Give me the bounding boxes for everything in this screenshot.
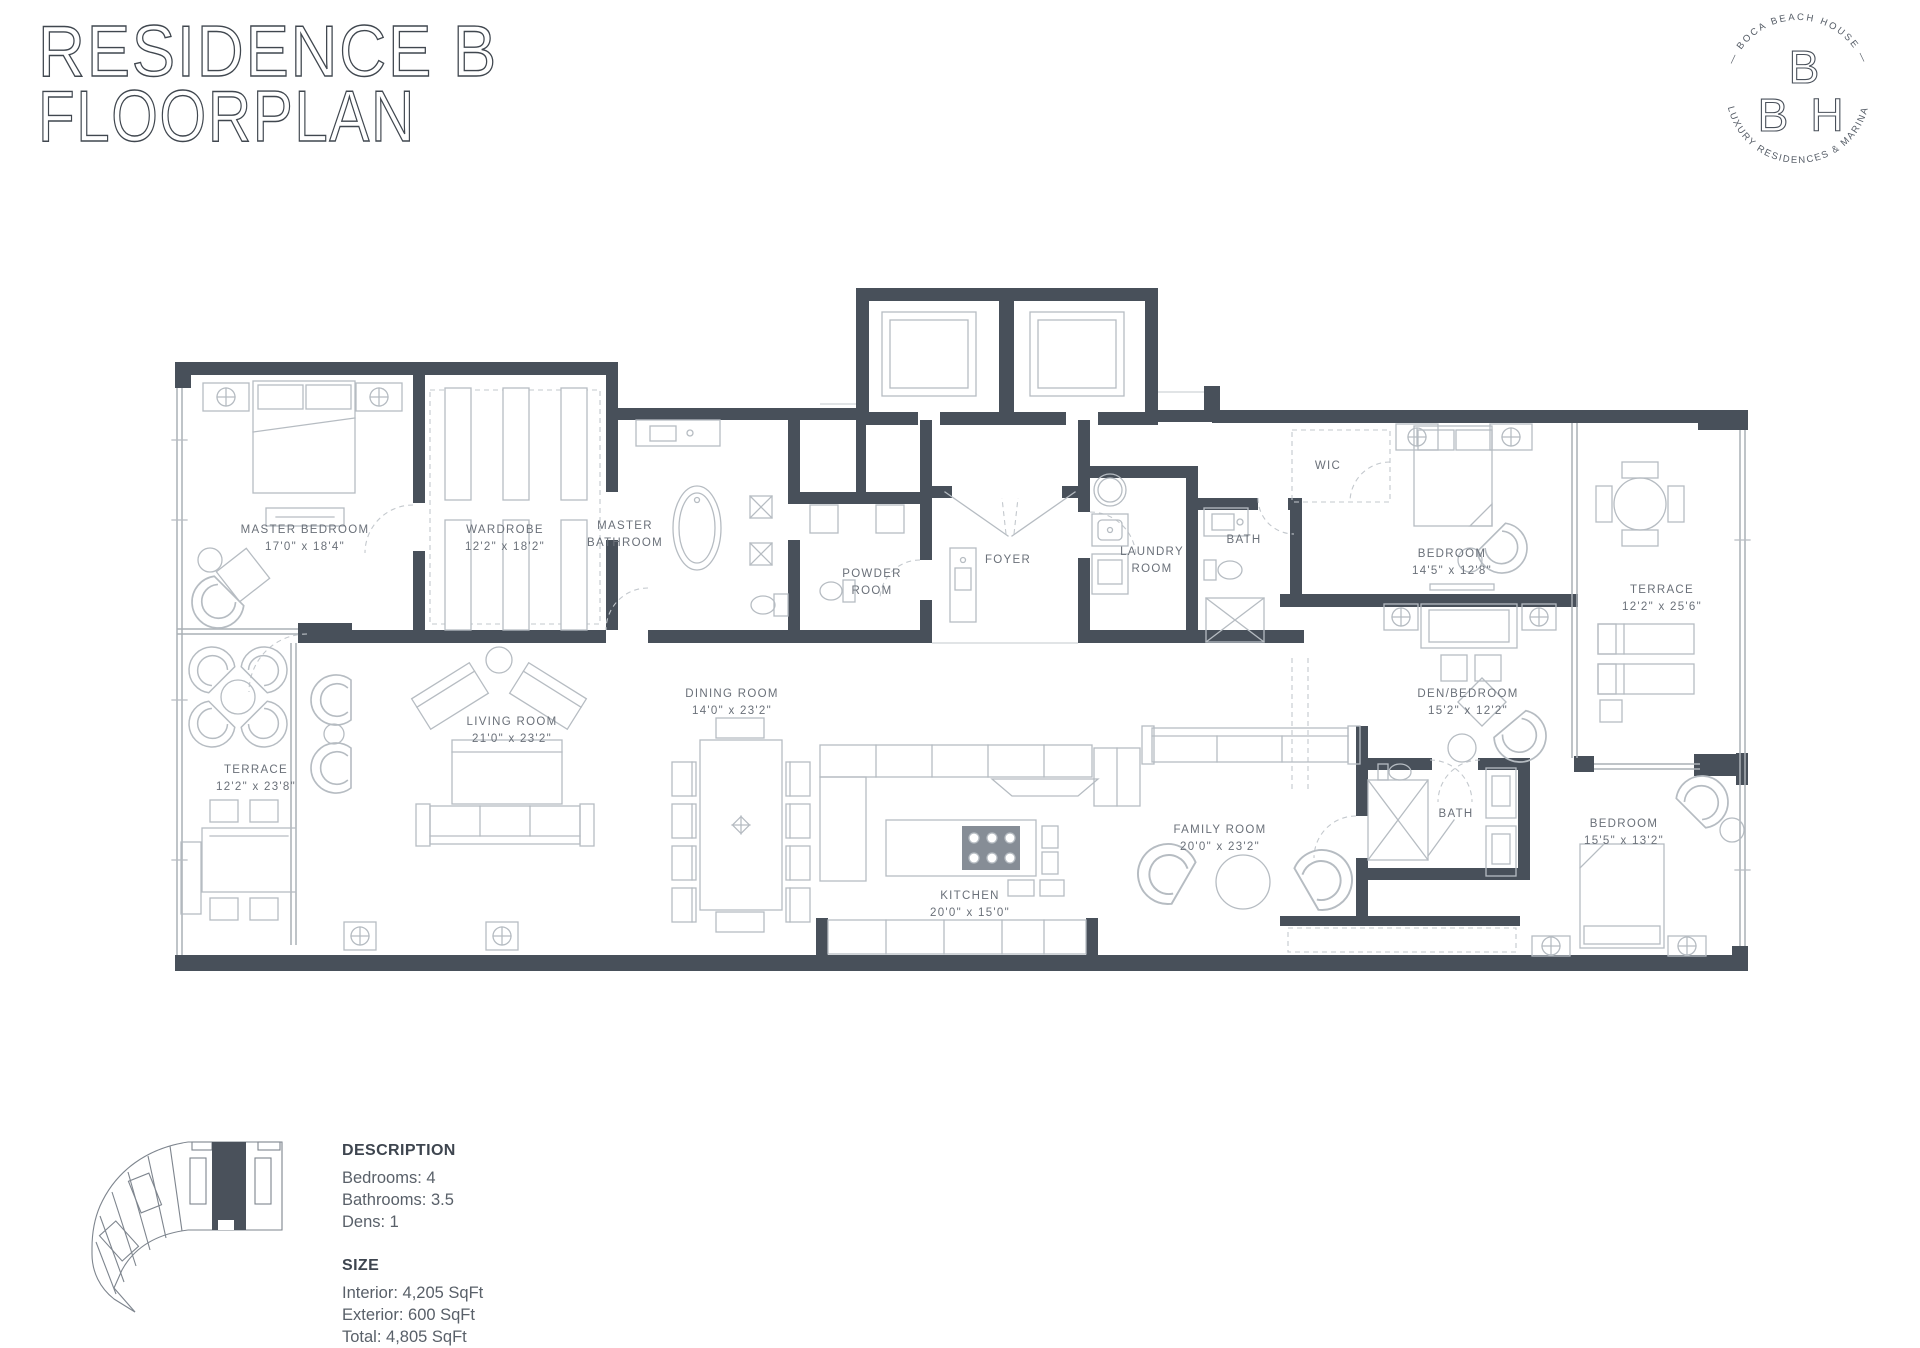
room-label-master-bedroom: MASTER BEDROOM17'0" x 18'4"	[241, 522, 370, 557]
furniture-living	[311, 647, 594, 950]
room-label-terrace-right: TERRACE12'2" x 25'6"	[1622, 582, 1702, 617]
room-label-family-room: FAMILY ROOM20'0" x 23'2"	[1173, 822, 1266, 857]
furniture-bath-center	[1204, 508, 1264, 642]
room-label-terrace-left: TERRACE12'2" x 23'8"	[216, 762, 296, 797]
room-label-laundry-room: LAUNDRYROOM	[1120, 544, 1184, 579]
room-label-bath-lower: BATH	[1438, 806, 1473, 823]
size-total: Total: 4,805 SqFt	[342, 1326, 483, 1348]
size-title: SIZE	[342, 1257, 483, 1275]
description-dens: Dens: 1	[342, 1211, 483, 1233]
furniture-master-bedroom	[181, 381, 402, 639]
room-label-master-bathroom: MASTERBATHROOM	[587, 518, 663, 553]
walls	[175, 288, 1748, 971]
room-label-living-room: LIVING ROOM21'0" x 23'2"	[467, 714, 558, 749]
room-label-bedroom-lower: BEDROOM15'5" x 13'2"	[1584, 816, 1664, 851]
floorplan-drawing	[0, 0, 1920, 1327]
details-panel: DESCRIPTION Bedrooms: 4 Bathrooms: 3.5 D…	[342, 1142, 483, 1348]
furniture-wardrobe	[430, 388, 600, 630]
room-label-den-bedroom: DEN/BEDROOM15'2" x 12'2"	[1417, 686, 1518, 721]
room-label-wardrobe: WARDROBE12'2" x 18'2"	[465, 522, 545, 557]
room-label-bath-center: BATH	[1226, 532, 1261, 549]
description-bedrooms: Bedrooms: 4	[342, 1167, 483, 1189]
description-title: DESCRIPTION	[342, 1142, 483, 1160]
room-label-powder-room: POWDERROOM	[842, 566, 902, 601]
description-bathrooms: Bathrooms: 3.5	[342, 1189, 483, 1211]
room-label-wic: WIC	[1315, 458, 1341, 475]
key-plan-highlighted-unit	[212, 1142, 246, 1230]
room-label-dining-room: DINING ROOM14'0" x 23'2"	[685, 686, 779, 721]
room-label-bedroom-upper: BEDROOM14'5" x 12'8"	[1412, 546, 1492, 581]
key-plan	[90, 1136, 305, 1326]
size-interior: Interior: 4,205 SqFt	[342, 1282, 483, 1304]
entry-doors	[945, 492, 1075, 536]
room-label-kitchen: KITCHEN20'0" x 15'0"	[930, 888, 1010, 923]
furniture-family	[1127, 726, 1363, 915]
size-exterior: Exterior: 600 SqFt	[342, 1304, 483, 1326]
furniture-dining	[672, 718, 810, 932]
room-label-foyer: FOYER	[985, 552, 1031, 569]
